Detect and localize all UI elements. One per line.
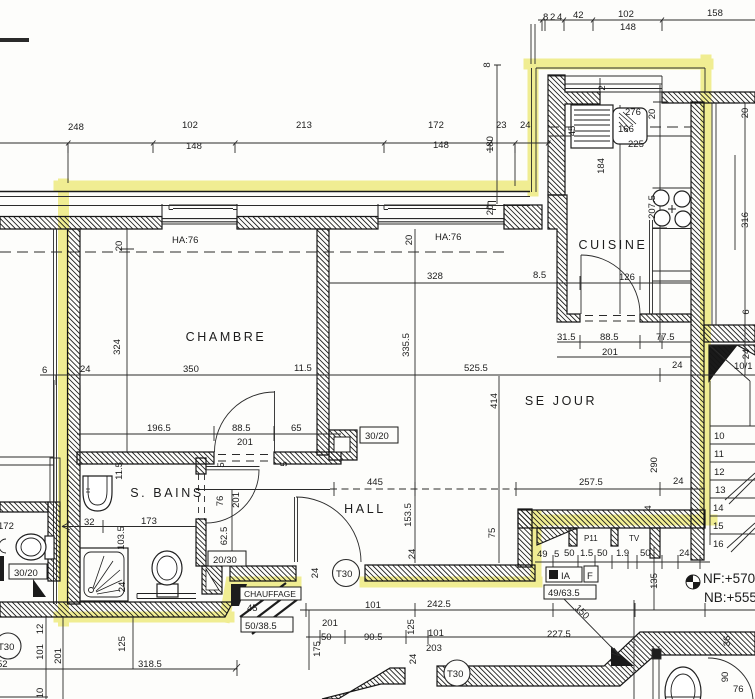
svg-text:20: 20 (647, 109, 658, 120)
svg-text:SE JOUR: SE JOUR (525, 394, 597, 408)
svg-text:201: 201 (231, 492, 242, 508)
svg-text:102: 102 (182, 120, 198, 131)
svg-text:2: 2 (597, 85, 608, 90)
svg-text:4: 4 (643, 505, 654, 510)
svg-text:HA:76: HA:76 (435, 232, 461, 243)
svg-text:23: 23 (496, 120, 507, 131)
svg-text:173: 173 (141, 516, 157, 527)
svg-text:196.5: 196.5 (147, 423, 171, 434)
svg-text:P11: P11 (584, 534, 598, 543)
svg-text:172: 172 (428, 120, 444, 131)
svg-text:276: 276 (625, 107, 641, 118)
svg-text:90.5: 90.5 (364, 632, 383, 643)
svg-text:50: 50 (640, 548, 651, 559)
svg-text:242.5: 242.5 (427, 599, 451, 610)
svg-text:32: 32 (84, 517, 95, 528)
svg-text:125: 125 (117, 636, 128, 652)
svg-text:F: F (587, 571, 593, 582)
svg-text:5: 5 (554, 549, 559, 560)
svg-text:76: 76 (215, 496, 226, 507)
svg-text:11: 11 (714, 449, 724, 460)
svg-text:30/20: 30/20 (14, 568, 38, 579)
svg-text:103.5: 103.5 (116, 526, 127, 550)
svg-text:T30: T30 (336, 569, 352, 580)
svg-text:NB:+555: NB:+555 (704, 590, 755, 605)
svg-text:HALL: HALL (344, 502, 386, 516)
svg-text:24: 24 (407, 549, 418, 560)
svg-text:62.5: 62.5 (219, 527, 230, 546)
svg-text:126: 126 (619, 272, 635, 283)
svg-text:20: 20 (404, 235, 415, 246)
svg-text:24: 24 (117, 582, 128, 593)
svg-text:65: 65 (291, 423, 302, 434)
svg-text:290: 290 (649, 457, 660, 473)
svg-text:11.5: 11.5 (294, 363, 312, 374)
svg-text:IA: IA (561, 571, 571, 582)
svg-text:318.5: 318.5 (138, 659, 162, 670)
svg-text:201: 201 (322, 618, 338, 629)
svg-text:HA:76: HA:76 (172, 235, 198, 246)
svg-text:31.5: 31.5 (557, 332, 576, 343)
svg-text:5: 5 (216, 462, 227, 467)
svg-text:12: 12 (714, 467, 725, 478)
svg-text:525.5: 525.5 (464, 363, 488, 374)
svg-text:T30: T30 (447, 669, 463, 680)
svg-text:49/63.5: 49/63.5 (548, 588, 580, 599)
svg-text:414: 414 (489, 393, 500, 409)
svg-text:CUISINE: CUISINE (579, 238, 648, 252)
svg-text:11.5: 11.5 (114, 462, 125, 480)
svg-text:30/20: 30/20 (365, 431, 389, 442)
svg-text:50: 50 (564, 548, 575, 559)
svg-text:24: 24 (310, 568, 321, 579)
svg-text:445: 445 (367, 477, 383, 488)
svg-text:75: 75 (487, 528, 498, 539)
svg-text:153.5: 153.5 (403, 503, 414, 527)
svg-text:1.5: 1.5 (580, 548, 593, 559)
svg-text:90: 90 (720, 672, 731, 683)
svg-text:10: 10 (714, 431, 725, 442)
svg-text:12: 12 (35, 624, 46, 635)
svg-text:14: 14 (713, 503, 724, 514)
svg-text:88.5: 88.5 (600, 332, 619, 343)
svg-text:102: 102 (618, 9, 634, 20)
svg-text:TV: TV (629, 534, 640, 543)
svg-text:24: 24 (408, 654, 419, 665)
svg-text:328: 328 (427, 271, 443, 282)
svg-text:335.5: 335.5 (401, 333, 412, 357)
svg-text:166: 166 (618, 124, 634, 135)
svg-text:49: 49 (537, 549, 548, 560)
svg-text:24: 24 (741, 349, 752, 360)
svg-text:6: 6 (42, 365, 47, 376)
svg-text:24: 24 (672, 360, 683, 371)
svg-text:203: 203 (426, 643, 442, 654)
svg-text:8: 8 (543, 12, 548, 23)
svg-text:148: 148 (433, 140, 449, 151)
svg-text:8.5: 8.5 (533, 270, 546, 281)
svg-text:125: 125 (406, 619, 417, 635)
svg-text:4: 4 (557, 12, 562, 23)
svg-text:207.5: 207.5 (647, 195, 658, 219)
svg-text:180: 180 (485, 136, 496, 152)
svg-text:201: 201 (602, 347, 618, 358)
svg-text:6: 6 (741, 309, 752, 314)
svg-text:20: 20 (740, 108, 751, 119)
svg-text:10: 10 (35, 688, 46, 699)
svg-text:248: 248 (68, 122, 84, 133)
svg-text:172: 172 (0, 521, 14, 532)
svg-text:T30: T30 (0, 642, 14, 653)
svg-text:20/30: 20/30 (213, 555, 237, 566)
svg-text:S. BAINS: S. BAINS (130, 486, 204, 500)
svg-text:50: 50 (597, 548, 608, 559)
svg-text:148: 148 (186, 141, 202, 152)
svg-text:316: 316 (740, 212, 751, 228)
svg-text:24: 24 (520, 120, 531, 131)
svg-text:20: 20 (485, 205, 496, 216)
svg-text:350: 350 (183, 364, 199, 375)
svg-text:158: 158 (707, 8, 723, 19)
svg-text:257.5: 257.5 (579, 477, 603, 488)
svg-text:15: 15 (713, 521, 724, 532)
svg-text:45: 45 (247, 603, 258, 614)
svg-text:135: 135 (649, 573, 660, 589)
svg-text:5: 5 (279, 461, 290, 466)
svg-text:225: 225 (628, 139, 644, 150)
svg-text:24: 24 (679, 548, 690, 559)
svg-text:324: 324 (112, 339, 123, 355)
svg-text:1.9: 1.9 (616, 548, 629, 559)
svg-text:24: 24 (80, 364, 91, 375)
svg-text:175: 175 (312, 641, 323, 657)
svg-text:88.5: 88.5 (232, 423, 251, 434)
svg-text:CHAMBRE: CHAMBRE (186, 330, 267, 344)
svg-text:101: 101 (365, 600, 381, 611)
svg-text:227.5: 227.5 (547, 629, 571, 640)
svg-text:201: 201 (237, 437, 253, 448)
svg-text:16: 16 (713, 539, 724, 550)
svg-text:50/38.5: 50/38.5 (245, 621, 277, 632)
svg-text:24: 24 (673, 476, 684, 487)
svg-text:201: 201 (53, 648, 64, 664)
svg-text:45: 45 (567, 126, 578, 137)
svg-text:42: 42 (573, 10, 584, 21)
svg-text:NF:+570: NF:+570 (703, 571, 755, 586)
svg-text:52: 52 (0, 659, 8, 670)
svg-text:213: 213 (296, 120, 312, 131)
svg-text:CHAUFFAGE: CHAUFFAGE (244, 589, 296, 599)
svg-text:10/1: 10/1 (734, 361, 753, 372)
svg-text:101: 101 (428, 628, 444, 639)
svg-text:13: 13 (715, 485, 726, 496)
svg-text:184: 184 (596, 158, 607, 174)
svg-text:2: 2 (550, 12, 555, 23)
svg-text:101: 101 (35, 644, 46, 660)
svg-text:148: 148 (620, 22, 636, 33)
svg-text:8: 8 (482, 62, 493, 67)
svg-text:76: 76 (733, 684, 744, 695)
svg-text:36: 36 (722, 636, 733, 647)
svg-text:77.5: 77.5 (656, 332, 675, 343)
svg-text:20: 20 (114, 241, 125, 252)
